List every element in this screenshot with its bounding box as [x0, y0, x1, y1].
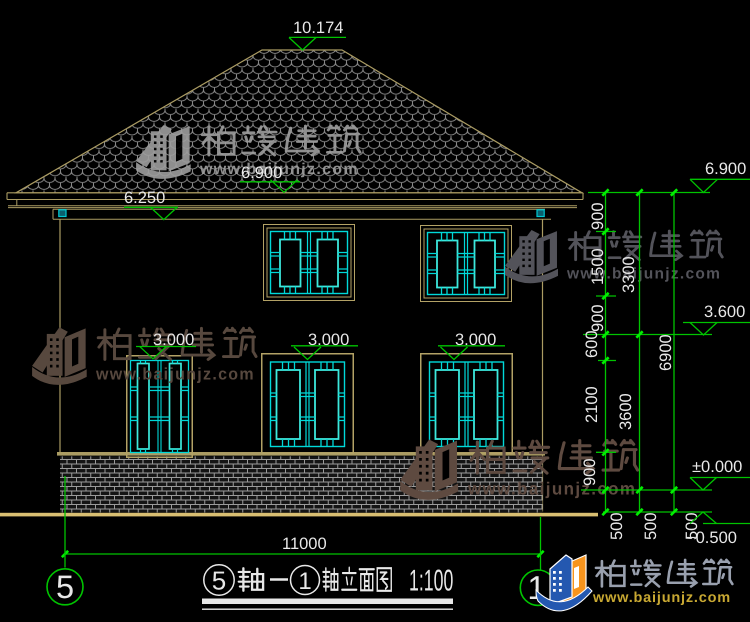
- svg-text:900: 900: [589, 304, 607, 332]
- svg-text:6900: 6900: [657, 334, 675, 371]
- svg-text:500: 500: [642, 512, 660, 540]
- svg-text:5: 5: [212, 566, 226, 596]
- svg-text:500: 500: [608, 512, 626, 540]
- svg-text:5: 5: [56, 569, 74, 605]
- svg-text:3600: 3600: [617, 393, 635, 430]
- svg-text:6.250: 6.250: [124, 189, 165, 207]
- svg-text:1500: 1500: [589, 248, 607, 285]
- svg-text:10.174: 10.174: [293, 19, 343, 37]
- svg-text:1: 1: [298, 568, 311, 595]
- svg-text:2100: 2100: [583, 386, 601, 423]
- svg-text:1:100: 1:100: [409, 565, 453, 598]
- svg-text:±0.000: ±0.000: [692, 458, 742, 476]
- svg-text:−0.500: −0.500: [686, 529, 737, 547]
- svg-text:6.900: 6.900: [705, 160, 746, 178]
- svg-text:11000: 11000: [282, 535, 327, 553]
- svg-text:3300: 3300: [620, 256, 638, 293]
- svg-text:900: 900: [581, 458, 599, 486]
- svg-text:6.900: 6.900: [241, 164, 282, 182]
- svg-text:600: 600: [583, 330, 601, 358]
- svg-text:www.baijunjz.com: www.baijunjz.com: [592, 590, 731, 606]
- svg-text:3.600: 3.600: [704, 303, 745, 321]
- svg-text:900: 900: [589, 202, 607, 230]
